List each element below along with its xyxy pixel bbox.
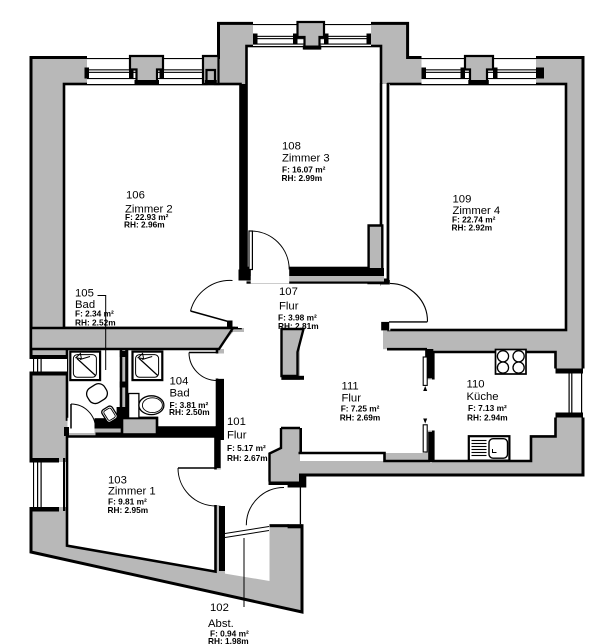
svg-text:RH: 2.95m: RH: 2.95m — [108, 505, 149, 515]
svg-text:106: 106 — [126, 190, 145, 202]
svg-text:RH: 2.52m: RH: 2.52m — [75, 318, 116, 328]
svg-text:RH: 1.98m: RH: 1.98m — [208, 636, 249, 644]
svg-text:110: 110 — [467, 379, 485, 391]
svg-text:RH: 2.99m: RH: 2.99m — [282, 173, 323, 183]
svg-text:Flur: Flur — [279, 301, 299, 313]
svg-text:108: 108 — [282, 141, 301, 153]
svg-text:RH: 2.96m: RH: 2.96m — [124, 220, 165, 230]
svg-text:111: 111 — [342, 381, 359, 393]
svg-text:RH: 2.92m: RH: 2.92m — [452, 223, 493, 233]
svg-text:RH: 2.67m: RH: 2.67m — [227, 453, 268, 463]
svg-text:F: 5.17 m²: F: 5.17 m² — [227, 443, 266, 453]
svg-text:107: 107 — [279, 286, 298, 298]
svg-text:Küche: Küche — [467, 391, 499, 403]
svg-text:104: 104 — [170, 376, 189, 388]
svg-text:RH: 2.69m: RH: 2.69m — [340, 413, 381, 423]
svg-text:Zimmer 3: Zimmer 3 — [282, 153, 330, 165]
svg-text:Flur: Flur — [227, 430, 247, 442]
svg-text:RH: 2.50m: RH: 2.50m — [169, 407, 210, 417]
svg-text:Flur: Flur — [342, 392, 362, 404]
svg-text:RH: 2.94m: RH: 2.94m — [467, 413, 508, 423]
svg-text:109: 109 — [453, 193, 472, 205]
svg-text:Bad: Bad — [170, 387, 190, 399]
svg-text:105: 105 — [75, 288, 94, 300]
svg-text:101: 101 — [227, 416, 246, 428]
svg-text:102: 102 — [210, 602, 229, 614]
svg-text:RH: 2.81m: RH: 2.81m — [278, 321, 319, 331]
svg-text:F: 7.13 m²: F: 7.13 m² — [468, 403, 507, 413]
